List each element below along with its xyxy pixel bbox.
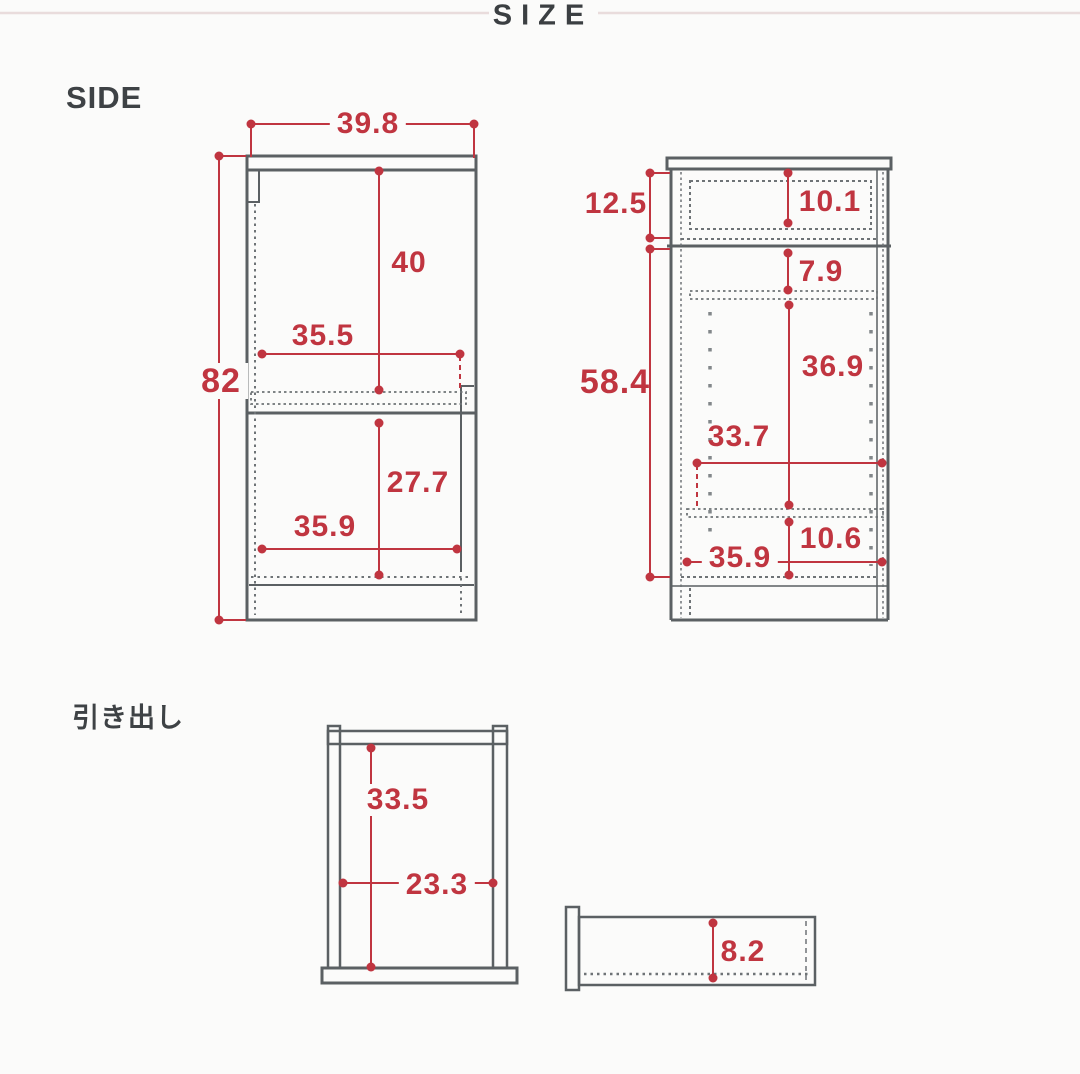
- dim-dot: [709, 919, 718, 928]
- dim-front-body-height: 58.4: [580, 365, 650, 399]
- page-title: SIZE: [493, 0, 593, 33]
- dim-drawer-inner-height: 8.2: [721, 937, 766, 967]
- dim-dot: [693, 459, 702, 468]
- dim-dot: [784, 249, 793, 258]
- cabinet-side-outline: [247, 156, 476, 620]
- dim-dot: [683, 558, 692, 567]
- dim-dot: [784, 219, 793, 228]
- dim-dot: [367, 963, 376, 972]
- dim-dot: [258, 350, 267, 359]
- drawer-top-left-wall: [328, 726, 340, 968]
- size-diagram-page: SIZE SIDE 引き出し 39.8 82 40 35.5 27.7 35.9…: [0, 0, 1080, 1074]
- dim-drawer-inner-depth: 33.5: [360, 784, 436, 816]
- dim-dot: [367, 744, 376, 753]
- dim-dot: [339, 879, 348, 888]
- dim-dot: [646, 169, 655, 178]
- cabinet-side-door-dotted-line: [251, 204, 472, 615]
- dim-dot: [784, 286, 793, 295]
- dim-dot: [375, 571, 384, 580]
- dim-front-shelf-width: 33.7: [708, 422, 770, 452]
- drawer-top-front-board: [322, 968, 517, 983]
- dim-side-top-width: 39.8: [330, 108, 406, 140]
- dim-dot: [646, 573, 655, 582]
- cabinet-front-shelf-lower: [687, 509, 883, 517]
- dim-front-shelf-area-height: 36.9: [802, 352, 864, 382]
- cabinet-side-shelf: [251, 392, 466, 404]
- dim-front-inner-width: 35.9: [702, 542, 778, 574]
- dim-dot: [785, 501, 794, 510]
- section-label-drawer: 引き出し: [72, 696, 184, 735]
- dim-side-upper-width: 35.5: [292, 321, 354, 351]
- dim-dot: [646, 245, 655, 254]
- drawer-top-dimension-lines: [343, 748, 493, 967]
- cabinet-side-inner-lines: [248, 170, 474, 585]
- dim-dot: [784, 169, 793, 178]
- drawer-side-diagram: [566, 907, 815, 990]
- dim-dot: [785, 518, 794, 527]
- dim-dot: [709, 974, 718, 983]
- dim-dot: [375, 386, 384, 395]
- drawer-top-diagram: [322, 726, 517, 983]
- dim-side-upper-height: 40: [391, 248, 426, 278]
- dim-dot: [215, 152, 224, 161]
- dim-front-top-clearance: 7.9: [799, 257, 844, 287]
- dim-dot: [878, 459, 887, 468]
- dim-front-drawer-height: 12.5: [585, 189, 647, 219]
- cabinet-side-dimension-lines: [219, 124, 474, 620]
- dim-dot: [247, 120, 256, 129]
- dim-dot: [375, 167, 384, 176]
- dim-dot: [453, 545, 462, 554]
- dim-dot: [785, 571, 794, 580]
- dim-side-total-height: 82: [194, 363, 248, 399]
- drawer-top-right-wall: [493, 726, 507, 968]
- dim-dot: [646, 234, 655, 243]
- dim-drawer-inner-width: 23.3: [399, 869, 475, 901]
- dim-dot: [456, 350, 465, 359]
- cabinet-side-diagram: [215, 120, 479, 625]
- drawer-side-front-board: [566, 907, 579, 990]
- dim-side-lower-width: 35.9: [294, 512, 356, 542]
- section-label-side: SIDE: [66, 80, 142, 116]
- drawer-top-back-rail: [328, 731, 507, 744]
- dim-dot: [470, 120, 479, 129]
- dim-dot: [878, 558, 887, 567]
- cabinet-front-shelf-upper: [690, 291, 877, 299]
- diagram-canvas: [0, 0, 1080, 1074]
- dim-dot: [215, 616, 224, 625]
- dim-dot: [375, 419, 384, 428]
- dim-front-drawer-inner-height: 10.1: [799, 187, 861, 217]
- dim-dot: [785, 301, 794, 310]
- dim-dot: [489, 879, 498, 888]
- dim-dot: [258, 545, 267, 554]
- dim-front-bottom-clearance: 10.6: [800, 524, 862, 554]
- dim-side-lower-height: 27.7: [387, 468, 449, 498]
